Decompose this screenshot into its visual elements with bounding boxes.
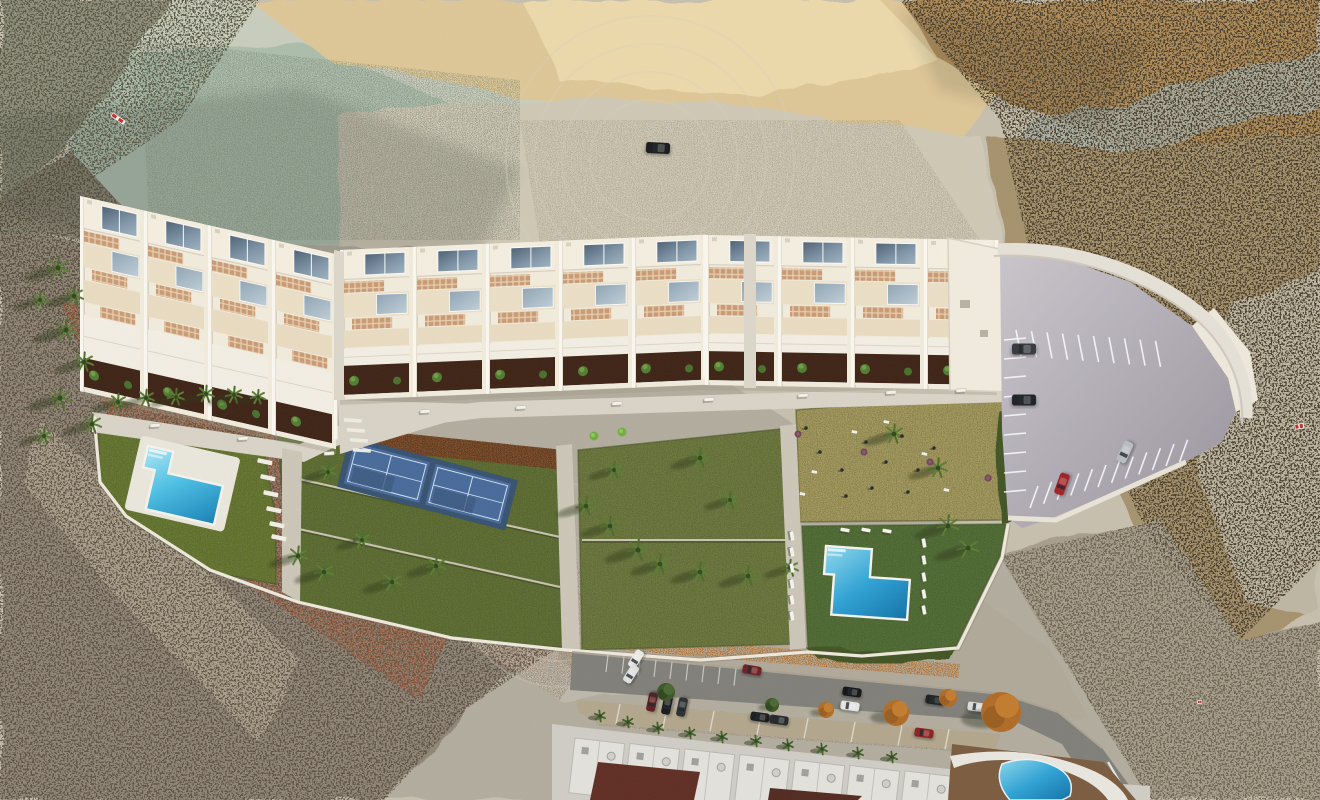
aerial-site-render-canvas [0, 0, 1320, 800]
aerial-site-render [0, 0, 1320, 800]
film-grain-overlay [0, 0, 1320, 800]
